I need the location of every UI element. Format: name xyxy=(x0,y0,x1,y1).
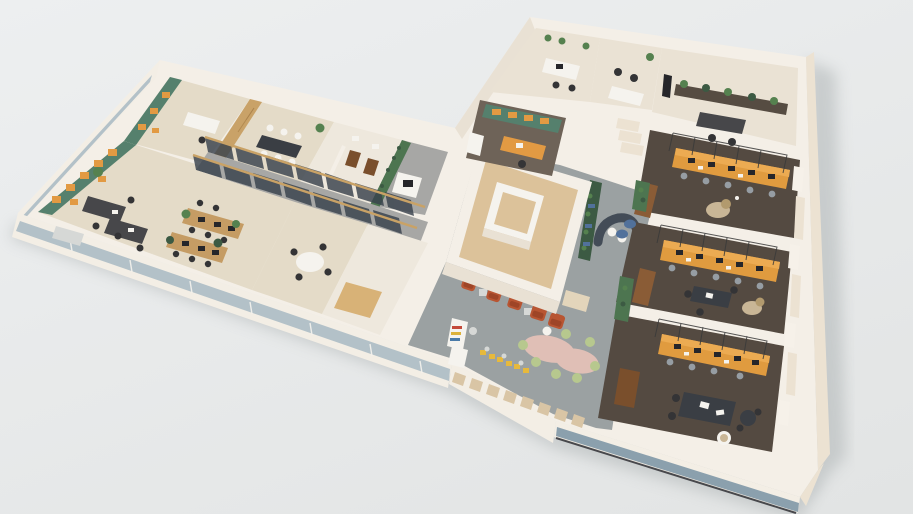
bean-bag xyxy=(616,230,628,239)
chair xyxy=(569,85,576,92)
white-pouf xyxy=(543,327,552,336)
chair xyxy=(630,74,638,82)
wicker-chair xyxy=(756,298,765,307)
back-office-2 xyxy=(590,38,662,110)
chair xyxy=(614,68,622,76)
bean-bag xyxy=(624,220,636,229)
chair xyxy=(553,82,560,89)
floor-lamp xyxy=(735,196,739,200)
plant-icon xyxy=(316,124,325,133)
round-table xyxy=(296,252,324,272)
copier-screen xyxy=(403,180,413,187)
white-pouf xyxy=(608,228,617,237)
paper xyxy=(196,118,202,122)
floorplan-3d-render xyxy=(0,0,913,514)
cafe-table xyxy=(469,327,477,335)
wicker-chair xyxy=(721,199,731,209)
plant-icon xyxy=(646,53,654,61)
render-canvas xyxy=(0,0,913,514)
chair xyxy=(518,160,526,168)
plant-icon xyxy=(93,167,103,177)
chair xyxy=(199,137,206,144)
side-table xyxy=(479,289,487,296)
